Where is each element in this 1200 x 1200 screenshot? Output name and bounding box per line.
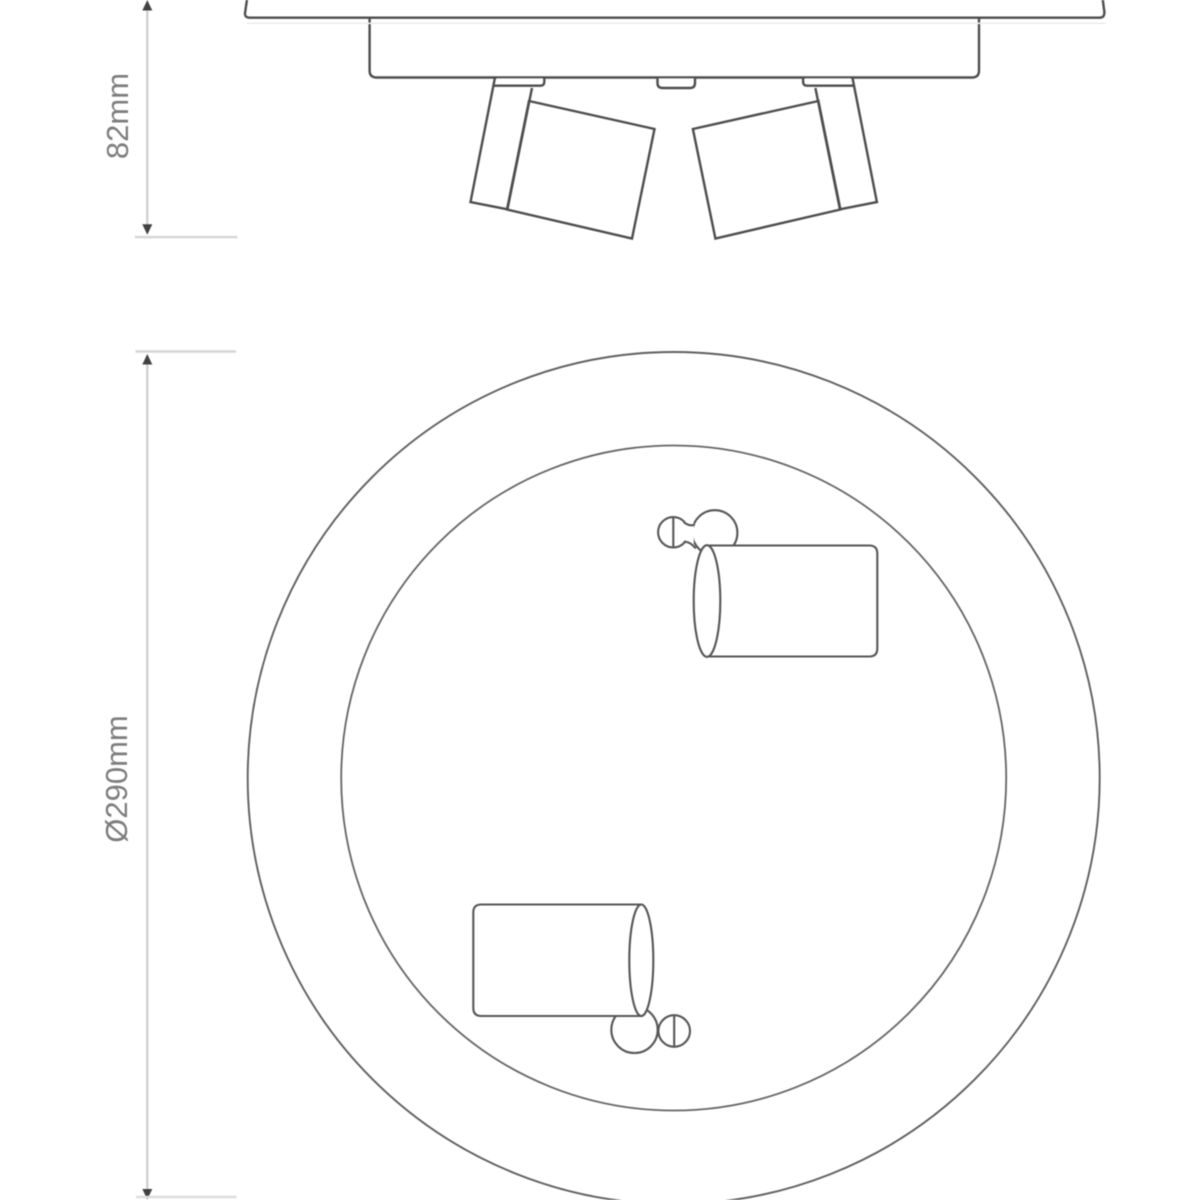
svg-text:Ø290mm: Ø290mm — [99, 715, 134, 842]
svg-text:82mm: 82mm — [100, 73, 135, 159]
